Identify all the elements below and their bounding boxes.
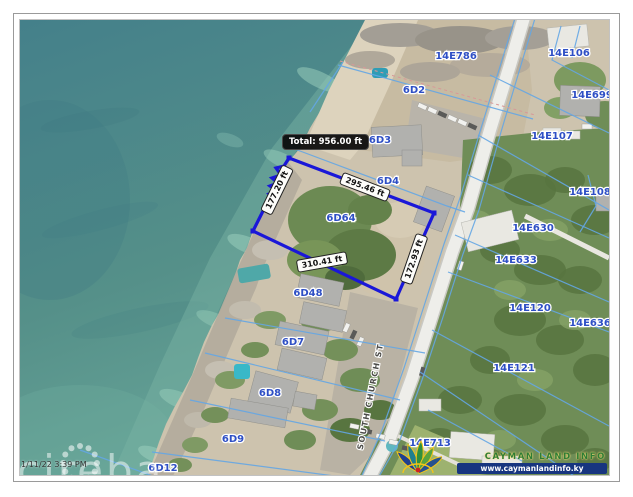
parcel-label: 14E630 <box>512 223 554 234</box>
parcel-label: 14E121 <box>493 363 535 374</box>
parcel-label: 6D7 <box>282 337 304 348</box>
parcel-label: 14E636 <box>569 318 609 329</box>
total-measurement-tooltip: Total: 956.00 ft <box>282 134 369 150</box>
parcel-label: 6D48 <box>293 288 322 299</box>
cayman-land-info-logo: CAYMAN LAND INFO www.caymanlandinfo.ky <box>394 433 609 475</box>
parcel-label: 14E786 <box>435 51 477 62</box>
screenshot-page: 14E786 6D2 6D3 6D4 6D64 6D48 6D7 6D8 6D9… <box>0 0 633 497</box>
parcel-label: 14E107 <box>531 131 573 142</box>
cayman-land-info-fan-icon <box>394 433 442 475</box>
parcel-label: 14E120 <box>509 303 551 314</box>
parcel-label: 6D9 <box>222 434 244 445</box>
parcel-label: 14E108 <box>569 187 609 198</box>
export-timestamp: 1/11/22 3:39 PM <box>21 460 87 469</box>
aerial-map-svg: 14E786 6D2 6D3 6D4 6D64 6D48 6D7 6D8 6D9… <box>20 20 609 475</box>
cayman-land-info-title: CAYMAN LAND INFO <box>485 452 606 462</box>
cayman-land-info-url[interactable]: www.caymanlandinfo.ky <box>457 463 607 474</box>
parcel-label: 6D2 <box>403 85 425 96</box>
parcel-label: 6D3 <box>369 135 391 146</box>
parcel-label: 14E699 <box>571 90 609 101</box>
map-viewport[interactable]: 14E786 6D2 6D3 6D4 6D64 6D48 6D7 6D8 6D9… <box>20 20 609 475</box>
parcel-label: 14E633 <box>495 255 537 266</box>
parcel-label: 6D64 <box>326 213 355 224</box>
parcel-label: 14E106 <box>548 48 590 59</box>
swimming-pool <box>234 364 250 379</box>
parcel-label: 6D8 <box>259 388 281 399</box>
dotted-ring-logo-icon <box>60 443 100 475</box>
